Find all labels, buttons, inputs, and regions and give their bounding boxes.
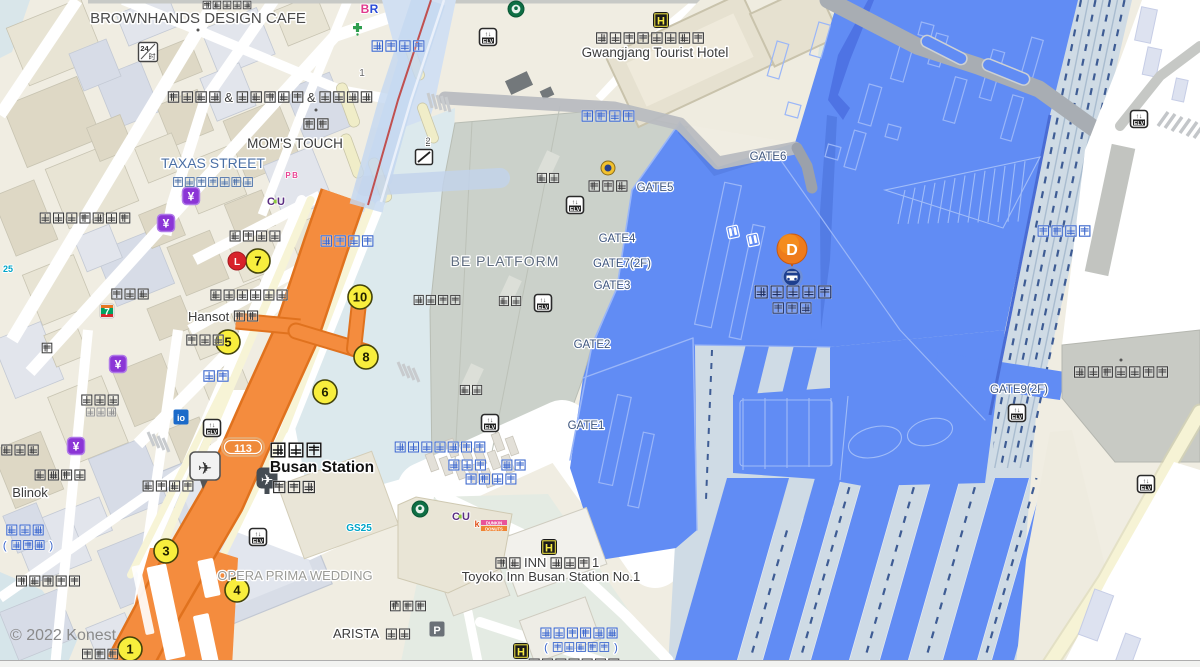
svg-text:GATE2: GATE2 bbox=[574, 339, 611, 351]
svg-text:P: P bbox=[433, 625, 440, 637]
svg-text:ARISTA: ARISTA bbox=[333, 626, 379, 641]
svg-text:ELV: ELV bbox=[253, 539, 264, 545]
svg-text:↑↓: ↑↓ bbox=[1014, 407, 1021, 414]
svg-text:ELV: ELV bbox=[1134, 121, 1145, 127]
svg-text:D: D bbox=[786, 242, 798, 259]
svg-text:¥: ¥ bbox=[115, 358, 122, 372]
svg-text:&: & bbox=[224, 90, 233, 105]
svg-text:ELV: ELV bbox=[538, 305, 549, 311]
svg-text:INN: INN bbox=[524, 555, 546, 570]
svg-text:ELV: ELV bbox=[483, 39, 494, 45]
svg-text:BE PLATFORM: BE PLATFORM bbox=[451, 253, 560, 269]
svg-text:¥: ¥ bbox=[188, 190, 195, 204]
svg-text:↑↓: ↑↓ bbox=[209, 422, 216, 429]
svg-text:10: 10 bbox=[353, 290, 367, 305]
svg-text:7: 7 bbox=[254, 254, 261, 269]
svg-text:↑↓: ↑↓ bbox=[540, 297, 547, 304]
svg-text:Hansot: Hansot bbox=[188, 309, 230, 324]
svg-text:↑↓: ↑↓ bbox=[1136, 113, 1143, 120]
svg-text:): ) bbox=[614, 642, 618, 654]
svg-text:GS25: GS25 bbox=[346, 523, 372, 534]
svg-text:ELV: ELV bbox=[1012, 415, 1023, 421]
svg-text:↑↓: ↑↓ bbox=[1143, 478, 1150, 485]
svg-text:&: & bbox=[307, 90, 316, 105]
svg-text:Blinok: Blinok bbox=[12, 485, 48, 500]
svg-text:8: 8 bbox=[362, 350, 369, 365]
svg-text:P: P bbox=[285, 171, 291, 180]
svg-text:↑↓: ↑↓ bbox=[572, 199, 579, 206]
svg-text:1: 1 bbox=[126, 642, 133, 657]
svg-text:25: 25 bbox=[3, 264, 13, 274]
svg-text:U: U bbox=[277, 196, 285, 208]
svg-text:4: 4 bbox=[233, 583, 241, 598]
svg-text:DUNKIN: DUNKIN bbox=[486, 521, 502, 526]
svg-text:ELV: ELV bbox=[1141, 486, 1152, 492]
svg-text:¥: ¥ bbox=[73, 440, 80, 454]
svg-text:5: 5 bbox=[224, 335, 231, 350]
svg-text:↑↓: ↑↓ bbox=[487, 417, 494, 424]
svg-text:Toyoko Inn Busan Station No.1: Toyoko Inn Busan Station No.1 bbox=[462, 569, 641, 584]
svg-text:GATE6: GATE6 bbox=[750, 151, 787, 163]
svg-text:OPERA PRIMA WEDDING: OPERA PRIMA WEDDING bbox=[217, 568, 372, 583]
svg-text:GATE1: GATE1 bbox=[568, 420, 605, 432]
svg-text:DONUTS: DONUTS bbox=[485, 527, 503, 532]
svg-text:MOM'S TOUCH: MOM'S TOUCH bbox=[247, 136, 343, 151]
svg-text:24: 24 bbox=[140, 44, 149, 53]
svg-text:io: io bbox=[177, 413, 186, 423]
svg-text:B: B bbox=[361, 2, 370, 16]
svg-text:L: L bbox=[234, 257, 240, 268]
svg-text:ELV: ELV bbox=[485, 425, 496, 431]
svg-text:1: 1 bbox=[359, 68, 365, 79]
svg-text:Busan Station: Busan Station bbox=[270, 459, 374, 476]
svg-text:6: 6 bbox=[321, 385, 328, 400]
svg-text:BROWNHANDS DESIGN CAFE: BROWNHANDS DESIGN CAFE bbox=[90, 10, 306, 27]
svg-text:GATE7(2F): GATE7(2F) bbox=[593, 258, 651, 270]
svg-text:GATE4: GATE4 bbox=[599, 233, 636, 245]
svg-text:© 2022 Konest: © 2022 Konest bbox=[10, 627, 117, 644]
svg-text:✈: ✈ bbox=[198, 459, 212, 478]
svg-text:H: H bbox=[517, 647, 525, 659]
svg-text:↑↓: ↑↓ bbox=[255, 531, 262, 538]
svg-text:R: R bbox=[370, 2, 379, 16]
svg-text:ELV: ELV bbox=[207, 430, 218, 436]
svg-text:H: H bbox=[545, 543, 553, 555]
svg-text:↑↓: ↑↓ bbox=[485, 31, 492, 38]
svg-text:U: U bbox=[462, 511, 470, 523]
svg-text:GATE5: GATE5 bbox=[637, 182, 674, 194]
svg-text:7: 7 bbox=[104, 307, 110, 318]
svg-text:¥: ¥ bbox=[163, 217, 170, 231]
svg-text:2: 2 bbox=[425, 136, 430, 146]
svg-text:Gwangjang Tourist Hotel: Gwangjang Tourist Hotel bbox=[582, 45, 729, 60]
svg-text:): ) bbox=[49, 540, 53, 552]
svg-text:(: ( bbox=[3, 540, 7, 552]
svg-text:ELV: ELV bbox=[570, 207, 581, 213]
svg-text:GATE3: GATE3 bbox=[594, 280, 631, 292]
svg-text:TAXAS STREET: TAXAS STREET bbox=[161, 155, 265, 171]
svg-text:(: ( bbox=[544, 642, 548, 654]
svg-text:3: 3 bbox=[162, 544, 169, 559]
svg-text:113: 113 bbox=[234, 443, 252, 455]
svg-text:B: B bbox=[292, 171, 298, 180]
svg-text:H: H bbox=[657, 16, 665, 28]
svg-text:GATE9(2F): GATE9(2F) bbox=[990, 384, 1048, 396]
svg-text:1: 1 bbox=[592, 555, 599, 570]
svg-text:时: 时 bbox=[149, 52, 156, 61]
